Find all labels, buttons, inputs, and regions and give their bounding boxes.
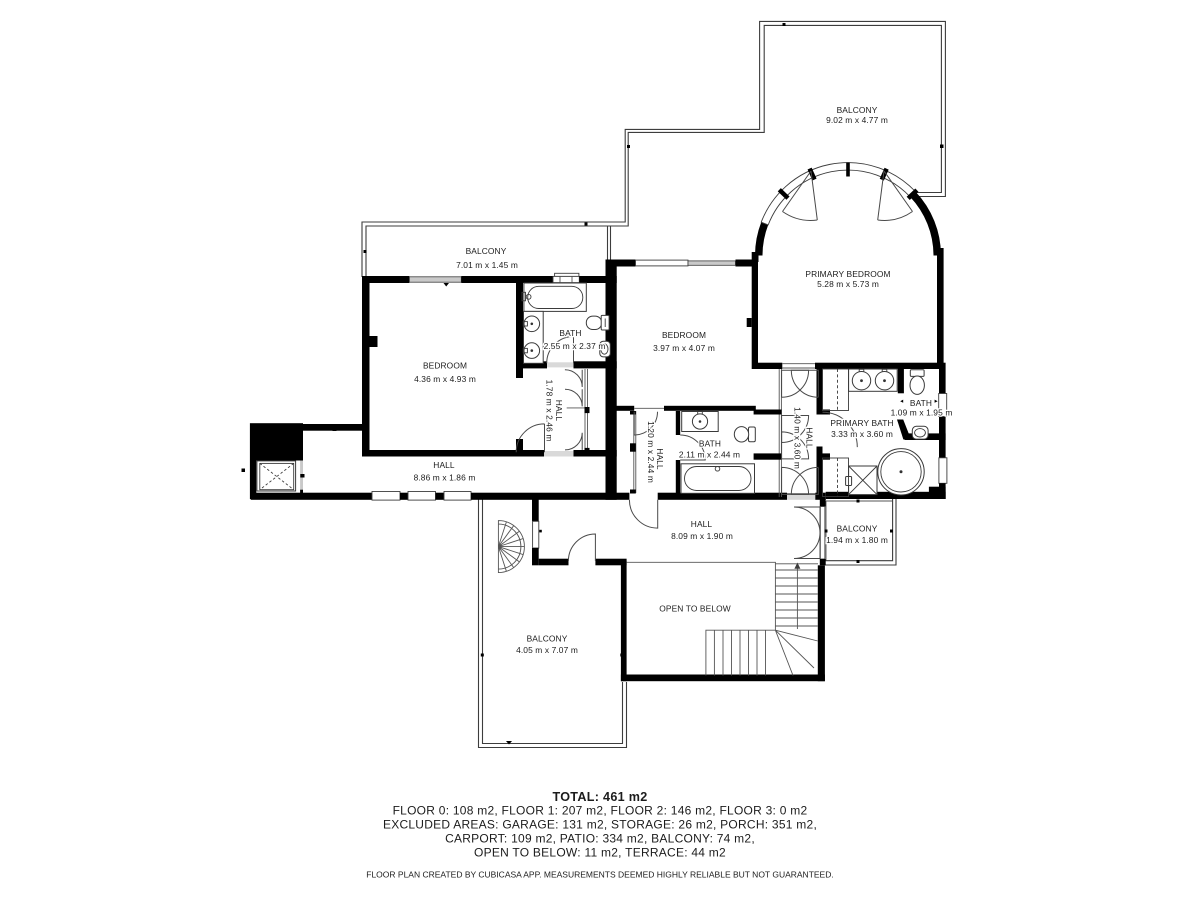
svg-text:EXCLUDED AREAS: GARAGE: 131 m2: EXCLUDED AREAS: GARAGE: 131 m2, STORAGE:… bbox=[383, 818, 817, 832]
svg-text:PRIMARY BEDROOM: PRIMARY BEDROOM bbox=[805, 269, 890, 279]
svg-text:7.01 m x 1.45 m: 7.01 m x 1.45 m bbox=[456, 260, 518, 270]
svg-text:HALL: HALL bbox=[691, 519, 713, 529]
svg-text:OPEN TO BELOW: OPEN TO BELOW bbox=[659, 604, 731, 614]
svg-text:BATH: BATH bbox=[910, 398, 932, 408]
svg-text:1.09 m x 1.95 m: 1.09 m x 1.95 m bbox=[891, 408, 953, 418]
svg-text:CARPORT: 109 m2, PATIO: 334 m2: CARPORT: 109 m2, PATIO: 334 m2, BALCONY:… bbox=[445, 832, 755, 846]
svg-text:3.33 m x 3.60 m: 3.33 m x 3.60 m bbox=[831, 429, 893, 439]
svg-text:FLOOR PLAN CREATED BY CUBICASA: FLOOR PLAN CREATED BY CUBICASA APP. MEAS… bbox=[366, 870, 833, 880]
svg-text:1.94 m x 1.80 m: 1.94 m x 1.80 m bbox=[826, 535, 888, 545]
svg-text:HALL: HALL bbox=[554, 400, 564, 422]
svg-text:BATH: BATH bbox=[699, 439, 721, 449]
svg-text:9.02 m x 4.77 m: 9.02 m x 4.77 m bbox=[826, 115, 888, 125]
svg-text:1.78 m x 2.46 m: 1.78 m x 2.46 m bbox=[545, 380, 555, 442]
svg-text:8.86 m x 1.86 m: 8.86 m x 1.86 m bbox=[414, 473, 476, 483]
svg-text:1.20 m x 2.44 m: 1.20 m x 2.44 m bbox=[646, 421, 656, 483]
svg-text:HALL: HALL bbox=[433, 460, 455, 470]
svg-text:BALCONY: BALCONY bbox=[466, 246, 507, 256]
svg-text:3.97 m x 4.07 m: 3.97 m x 4.07 m bbox=[653, 343, 715, 353]
svg-text:FLOOR 0: 108 m2, FLOOR 1: 207: FLOOR 0: 108 m2, FLOOR 1: 207 m2, FLOOR … bbox=[393, 804, 808, 818]
svg-text:5.28 m x 5.73 m: 5.28 m x 5.73 m bbox=[817, 279, 879, 289]
svg-text:BALCONY: BALCONY bbox=[837, 524, 878, 534]
svg-text:BEDROOM: BEDROOM bbox=[662, 330, 706, 340]
svg-text:BALCONY: BALCONY bbox=[837, 105, 878, 115]
svg-text:HALL: HALL bbox=[805, 427, 815, 449]
svg-text:PRIMARY BATH: PRIMARY BATH bbox=[830, 418, 893, 428]
svg-text:2.55 m x 2.37 m: 2.55 m x 2.37 m bbox=[544, 341, 606, 351]
svg-text:4.05 m x 7.07 m: 4.05 m x 7.07 m bbox=[516, 645, 578, 655]
svg-text:BATH: BATH bbox=[559, 328, 581, 338]
svg-text:1.40 m x 3.60 m: 1.40 m x 3.60 m bbox=[793, 407, 803, 469]
svg-text:4.36 m x 4.93 m: 4.36 m x 4.93 m bbox=[414, 374, 476, 384]
svg-text:BEDROOM: BEDROOM bbox=[423, 361, 467, 371]
svg-text:OPEN TO BELOW: 11 m2, TERRACE:: OPEN TO BELOW: 11 m2, TERRACE: 44 m2 bbox=[474, 846, 726, 860]
svg-text:TOTAL: 461 m2: TOTAL: 461 m2 bbox=[552, 790, 647, 804]
svg-text:2.11 m x 2.44 m: 2.11 m x 2.44 m bbox=[679, 450, 740, 460]
svg-text:8.09 m x 1.90 m: 8.09 m x 1.90 m bbox=[671, 531, 733, 541]
svg-text:BALCONY: BALCONY bbox=[527, 634, 568, 644]
